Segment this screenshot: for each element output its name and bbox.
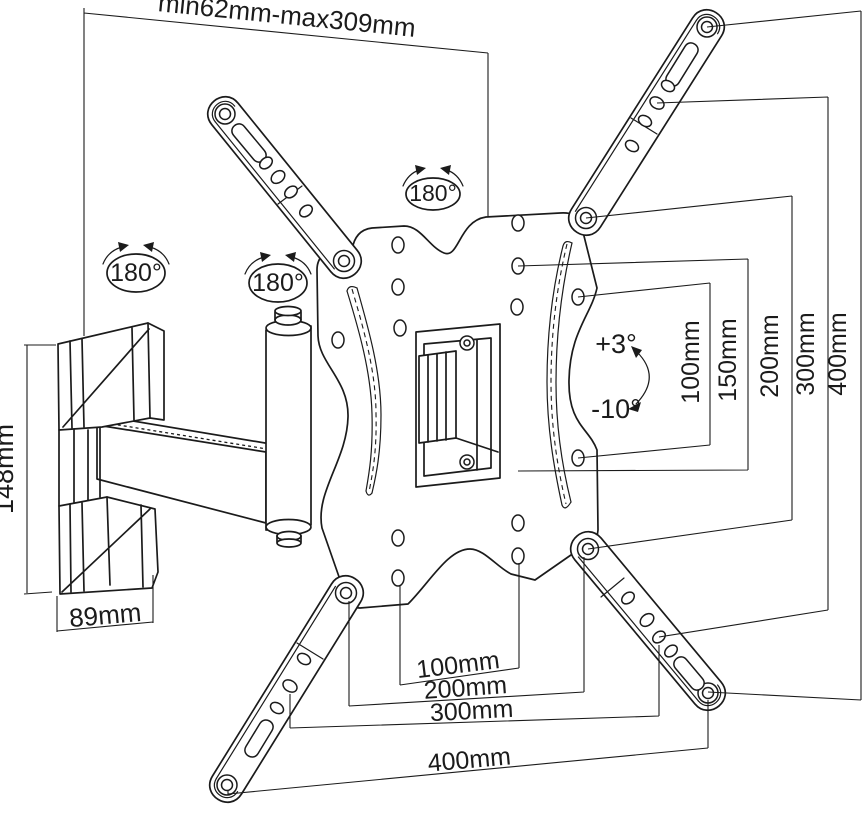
extension-arm-bottom-left bbox=[210, 576, 364, 802]
bottom-bolt bbox=[277, 539, 301, 547]
extension-arm-top-right bbox=[569, 10, 725, 235]
vesa-v-100-label: 100mm bbox=[677, 320, 705, 403]
mount-depth-label: 89mm bbox=[68, 597, 143, 633]
diagram-canvas: 180° 180° 180° +3° -10° min62mm-max309mm… bbox=[0, 0, 863, 818]
wall-mount-technical-diagram: 180° 180° 180° +3° -10° min62mm-max309mm… bbox=[0, 0, 863, 818]
vesa-v-150-label: 150mm bbox=[714, 318, 742, 401]
swivel-indicator-left: 180° bbox=[103, 242, 169, 292]
extension-range-label: min62mm-max309mm bbox=[157, 0, 417, 43]
swivel-indicator-plate: 180° bbox=[403, 165, 463, 210]
vesa-h-400-label: 400mm bbox=[427, 742, 512, 777]
vesa-v-300-label: 300mm bbox=[792, 312, 820, 395]
swivel-indicator-mid: 180° bbox=[245, 252, 311, 302]
pivot-column bbox=[266, 307, 311, 548]
tilt-indicator: +3° -10° bbox=[591, 329, 649, 424]
vesa-v-400-label: 400mm bbox=[824, 312, 852, 395]
mount-height-label: 148mm bbox=[0, 424, 19, 514]
swivel-left-label: 180° bbox=[110, 259, 162, 287]
swivel-plate-label: 180° bbox=[409, 180, 457, 206]
tilt-up-label: +3° bbox=[595, 329, 637, 359]
central-monitor-bracket bbox=[416, 324, 500, 487]
extension-arm-bottom-right bbox=[571, 532, 726, 711]
vesa-v-200-label: 200mm bbox=[756, 314, 784, 397]
extension-arm-top-left bbox=[208, 97, 362, 279]
tilt-down-label: -10° bbox=[591, 394, 641, 424]
top-bolt bbox=[275, 307, 301, 316]
vesa-h-300-label: 300mm bbox=[429, 695, 514, 727]
swivel-mid-label: 180° bbox=[252, 269, 304, 297]
